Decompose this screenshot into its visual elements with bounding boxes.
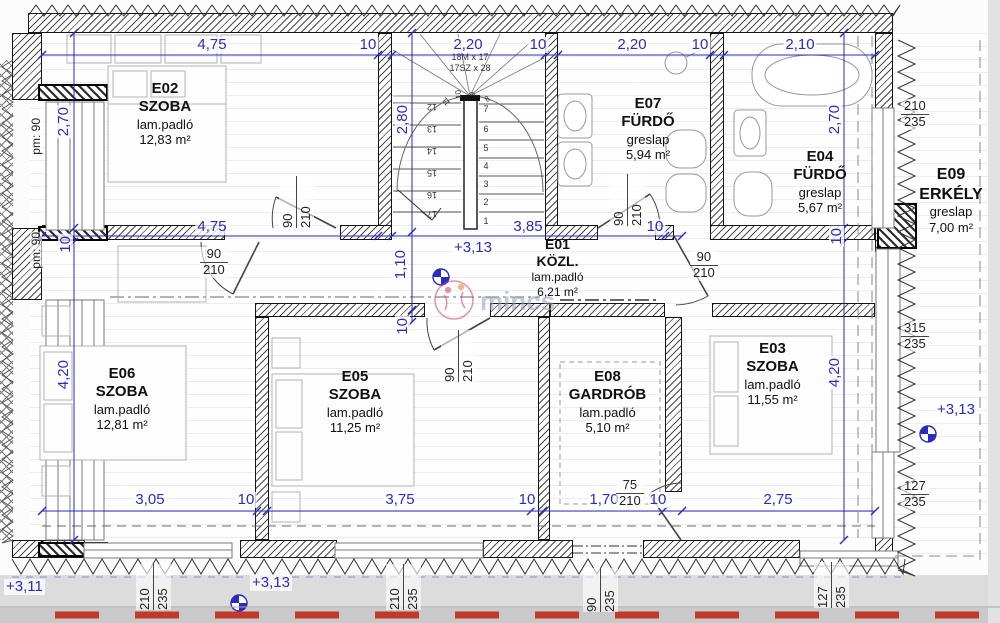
window-width: 315 [901, 321, 929, 337]
room-id: E04 [755, 148, 885, 166]
dim-bottom-4: 10 [517, 492, 538, 508]
window-bottom-e06 [84, 543, 232, 558]
room-floor: lam.padló [95, 117, 235, 133]
dim-bottom-3: 3,75 [383, 492, 416, 508]
door-size-e05: 90 210 [441, 330, 476, 382]
stair-num: 3 [483, 179, 488, 189]
window-size-e03-right: 127 235 [901, 479, 929, 510]
room-type: FÜRDŐ [578, 113, 718, 131]
stair-num: 11 [440, 95, 453, 108]
window-size-e08: 90 235 [583, 568, 618, 612]
level-bottom: +3,13 [250, 575, 292, 591]
stair-num: 2 [483, 197, 488, 207]
room-type: ERKÉLY [906, 185, 996, 205]
room-floor: lam.padló [285, 405, 425, 421]
stair-num: 1 [483, 216, 488, 226]
room-type: GARDRÓB [540, 386, 675, 404]
window-bottom-e08 [573, 546, 643, 553]
room-floor: lam.padló [700, 377, 845, 393]
dim-right-2: 10 [829, 226, 844, 247]
room-area: 12,83 m² [95, 132, 235, 148]
window-size-e06: 210 235 [136, 564, 171, 610]
dim-right-1: 2,70 [827, 103, 842, 136]
level-marker-right [920, 426, 936, 442]
room-label-e04: E04 FÜRDŐ greslap 5,67 m² [755, 148, 885, 216]
room-label-e09: E09 ERKÉLY greslap 7,00 m² [906, 165, 996, 236]
door-size-e08: 75 210 [616, 478, 644, 509]
door-width: 90 [690, 250, 718, 266]
dim-top-6: 10 [690, 37, 711, 53]
window-width: 210 [136, 564, 153, 610]
window-width: 90 [583, 568, 600, 612]
dim-left-3: 4,20 [56, 358, 71, 391]
dim-bottom-6: 10 [648, 492, 669, 508]
dim-top-5: 2,20 [615, 37, 648, 53]
dim-left-1: 2,70 [56, 105, 71, 138]
dim-bottom-2: 10 [236, 492, 257, 508]
room-area: 7,00 m² [906, 220, 996, 236]
parapet-label-e06: pm: 90 [30, 232, 42, 269]
stair-num: 12 [427, 102, 437, 112]
level-marker-hall [433, 269, 449, 285]
room-area: 5,94 m² [578, 147, 718, 163]
room-type: FÜRDŐ [755, 166, 885, 184]
room-label-e01: E01 KÖZL. lam.padló 6,21 m² [505, 236, 610, 299]
level-hall: +3,13 [452, 240, 494, 256]
window-size-e05: 210 235 [386, 564, 421, 610]
room-area: 6,21 m² [505, 285, 610, 300]
level-right: +3,13 [935, 402, 977, 418]
stair-num: 8 [483, 94, 493, 104]
window-width: 210 [901, 99, 929, 115]
dim-left-2: 10 [58, 234, 73, 255]
room-id: E09 [906, 165, 996, 185]
room-type: SZOBA [52, 383, 192, 401]
room-area: 5,67 m² [755, 200, 885, 216]
door-height: 210 [459, 330, 476, 382]
window-right-e09 [876, 249, 900, 452]
stair-numbers: 1 2 3 4 5 6 7 8 9 10 11 12 13 14 15 16 1… [427, 89, 492, 226]
dim-inner-1: 2,80 [395, 103, 410, 136]
stair-num: 17 [427, 209, 437, 219]
room-id: E02 [95, 80, 235, 98]
dim-mid-1: 4,75 [195, 219, 228, 235]
door-height: 210 [200, 263, 228, 278]
room-floor: greslap [755, 185, 885, 201]
room-label-e05: E05 SZOBA lam.padló 11,25 m² [285, 368, 425, 436]
room-type: SZOBA [700, 358, 845, 376]
floor-plan: 1 2 3 4 5 6 7 8 9 10 11 12 13 14 15 16 1… [0, 0, 1000, 623]
stair-num: 5 [483, 143, 488, 153]
window-height: 235 [901, 337, 929, 352]
dim-top-7: 2,10 [783, 37, 816, 53]
window-size-e03-bottom: 127 235 [814, 562, 849, 608]
window-size-e04-right: 210 235 [901, 99, 929, 130]
room-id: E01 [505, 236, 610, 253]
room-id: E06 [52, 365, 192, 383]
window-height: 235 [154, 564, 171, 610]
window-bottom-e05 [335, 543, 483, 558]
room-floor: lam.padló [52, 402, 192, 418]
room-id: E05 [285, 368, 425, 386]
door-height: 210 [628, 174, 645, 226]
door-size-e02: 90 210 [279, 176, 314, 228]
door-height: 210 [616, 494, 644, 509]
window-height: 235 [901, 115, 929, 130]
room-area: 5,10 m² [540, 420, 675, 436]
door-width: 90 [610, 174, 627, 226]
room-label-e02: E02 SZOBA lam.padló 12,83 m² [95, 80, 235, 148]
window-right-e03 [872, 452, 894, 538]
window-height: 235 [404, 564, 421, 610]
room-type: KÖZL. [505, 253, 610, 270]
dim-bottom-1: 3,05 [133, 492, 166, 508]
room-area: 11,25 m² [285, 420, 425, 436]
window-size-e09-right: 315 235 [901, 321, 929, 352]
room-id: E03 [700, 340, 845, 358]
window-height: 235 [601, 568, 618, 612]
parapet-label-e02: pm: 90 [30, 118, 42, 155]
window-height: 235 [832, 562, 849, 608]
room-id: E08 [540, 368, 675, 386]
dim-top-1: 4,75 [195, 37, 228, 53]
room-id: E07 [578, 95, 718, 113]
room-label-e03: E03 SZOBA lam.padló 11,55 m² [700, 340, 845, 408]
door-width: 75 [616, 478, 644, 494]
door-height: 210 [297, 176, 314, 228]
door-height: 210 [690, 266, 718, 281]
room-floor: greslap [906, 204, 996, 220]
door-width: 90 [200, 247, 228, 263]
room-floor: lam.padló [505, 270, 610, 285]
room-type: SZOBA [285, 386, 425, 404]
stair-num: 16 [427, 190, 437, 200]
window-width: 127 [901, 479, 929, 495]
room-floor: greslap [578, 132, 718, 148]
dim-top-2: 10 [358, 37, 379, 53]
room-label-e06: E06 SZOBA lam.padló 12,81 m² [52, 365, 192, 433]
stair-num: 14 [427, 146, 437, 156]
stair-note-2: 17SZ x 28 [449, 63, 490, 73]
dim-top-3: 2,20 [451, 37, 484, 53]
stair-num: 10 [453, 89, 464, 100]
dim-mid-3: 10 [645, 219, 666, 235]
door-size-e07: 90 210 [610, 174, 645, 226]
dim-top-4: 10 [528, 37, 549, 53]
stair-num: 4 [483, 161, 488, 171]
generated-path [2, 60, 13, 543]
door-size-e06: 90 210 [200, 247, 228, 278]
level-marker-bottom [231, 595, 247, 611]
window-height: 235 [901, 495, 929, 510]
generated-path [28, 5, 900, 16]
room-label-e08: E08 GARDRÓB lam.padló 5,10 m² [540, 368, 675, 436]
door-size-e04: 90 210 [690, 250, 718, 281]
room-type: SZOBA [95, 98, 235, 116]
stair-num: 7 [483, 104, 488, 114]
dim-inner-2: 1,10 [393, 248, 408, 281]
dim-mid-2: 3,85 [511, 219, 544, 235]
dim-inner-3: 10 [395, 316, 410, 337]
dim-right-3: 4,20 [827, 356, 842, 389]
stair-num: 13 [427, 124, 437, 134]
room-area: 12,81 m² [52, 417, 192, 433]
stair-note-1: 18M x 17 [451, 52, 488, 62]
stair-num: 6 [483, 124, 488, 134]
level-outside: +3,11 [4, 579, 45, 595]
door-width: 90 [441, 330, 458, 382]
dim-bottom-7: 2,75 [761, 492, 794, 508]
room-label-e07: E07 FÜRDŐ greslap 5,94 m² [578, 95, 718, 163]
room-area: 11,55 m² [700, 392, 845, 408]
room-floor: lam.padló [540, 405, 675, 421]
window-width: 210 [386, 564, 403, 610]
window-width: 127 [814, 562, 831, 608]
door-width: 90 [279, 176, 296, 228]
stair-num: 15 [427, 168, 437, 178]
